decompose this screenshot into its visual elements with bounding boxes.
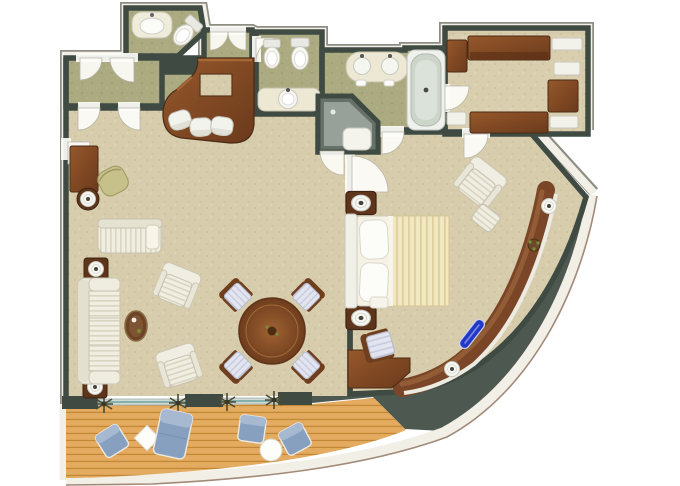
table-centerpiece <box>268 327 277 336</box>
nightstand <box>346 306 376 329</box>
centerpiece-leaf <box>275 332 278 335</box>
towel <box>356 80 366 86</box>
pillow <box>359 219 389 259</box>
guest-faucet <box>150 13 154 17</box>
side-cabinet <box>447 40 467 72</box>
vanity-sink-right <box>382 58 399 75</box>
bathtub-drain <box>424 88 429 93</box>
faucet <box>388 54 392 58</box>
lamp-table <box>84 258 108 280</box>
bidet <box>264 39 281 68</box>
wardrobe-bottom <box>470 112 548 133</box>
faucet <box>360 54 364 58</box>
nightstand <box>346 191 376 214</box>
round-side-table <box>260 439 282 461</box>
wall-segment <box>185 394 223 407</box>
shower-step <box>343 128 371 150</box>
bar-stool <box>189 117 212 137</box>
floor-plan-rendering <box>0 0 680 486</box>
wardrobe-top-face <box>470 52 548 59</box>
lamp-table <box>77 188 99 210</box>
open-shelf <box>552 38 582 50</box>
console-lamp <box>542 199 557 214</box>
towel <box>384 80 394 86</box>
wc-faucet <box>286 88 290 92</box>
double-bed <box>345 214 449 308</box>
writing-desk <box>70 146 98 192</box>
floor-plan-page <box>0 0 680 486</box>
bedspread <box>391 216 449 306</box>
wall-segment <box>278 392 312 405</box>
vanity-sink-left <box>354 58 371 75</box>
wc-sink-bowl <box>282 93 294 105</box>
console-lamp <box>445 362 460 377</box>
sofa <box>78 278 120 384</box>
guest-sink <box>140 18 164 34</box>
lounge-chair <box>237 414 266 443</box>
centerpiece-leaf <box>265 325 268 328</box>
bed-throw <box>370 297 388 308</box>
toilet <box>291 38 309 70</box>
chaise-lounge <box>98 219 162 253</box>
sheet-fold <box>388 216 393 306</box>
shower-head <box>331 110 336 115</box>
hall-block <box>164 62 198 72</box>
open-shelf <box>550 116 578 128</box>
open-shelf <box>447 112 466 125</box>
headboard <box>345 214 357 308</box>
dresser <box>548 80 578 112</box>
console-plant <box>528 239 540 251</box>
bar-inner-floor <box>200 74 232 96</box>
open-shelf <box>554 62 580 75</box>
coffee-table <box>125 311 147 341</box>
